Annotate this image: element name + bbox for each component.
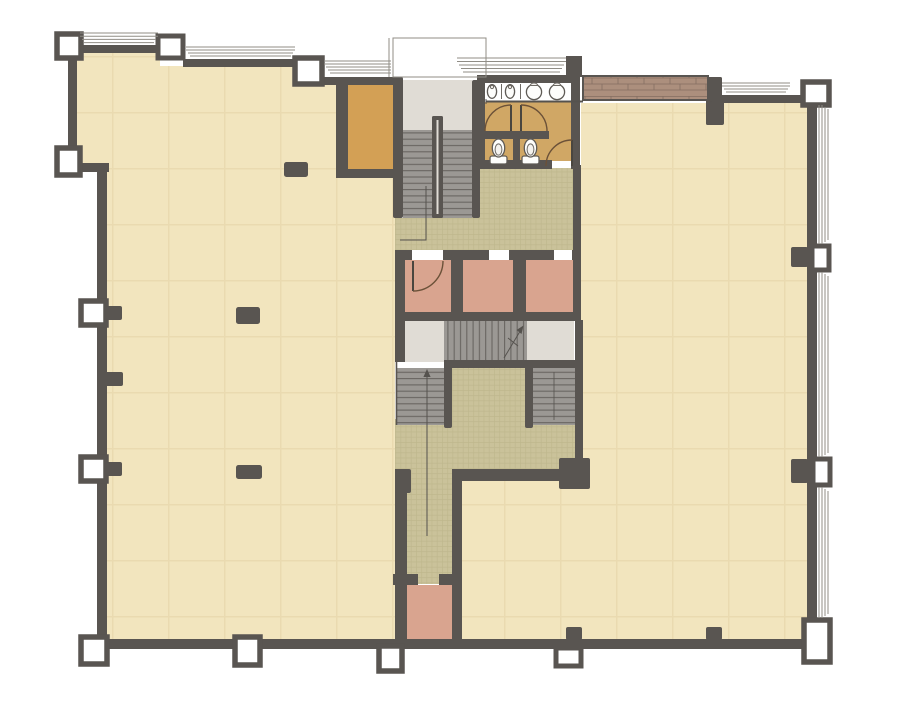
pier-interior-1 — [284, 162, 308, 177]
restroom-window-step-stub — [566, 56, 582, 77]
window-bay-2 — [186, 47, 295, 56]
scissor-upper-run-treads — [444, 321, 527, 362]
column-top-left — [57, 34, 81, 58]
elevator-top-wall-4 — [572, 250, 581, 260]
column-top-2 — [158, 36, 183, 58]
scissor-west-run-treads — [397, 368, 444, 425]
window-bay-top-right — [722, 83, 790, 92]
elevator-top-wall-3 — [509, 250, 554, 260]
pier-bottom-2 — [706, 627, 722, 640]
core-lobby-floor — [395, 419, 575, 470]
pier-right-hall-top — [710, 101, 724, 125]
floor-plan-drawing — [0, 0, 900, 712]
column-bottom-left — [81, 637, 107, 664]
floor-plan-page — [0, 0, 900, 712]
scissor-east-landing — [527, 321, 574, 362]
scissor-void-east-wall — [525, 360, 533, 428]
top-wall-right — [712, 95, 807, 103]
top-wall-bay1 — [77, 45, 160, 53]
restroom-west-wall — [475, 83, 485, 169]
pier-interior-3 — [236, 465, 262, 479]
stall-divider-wall — [513, 131, 520, 169]
lobby-l-wall-horizontal — [452, 469, 564, 481]
restroom-north-wall — [477, 75, 573, 83]
column-bottom-2 — [235, 637, 260, 665]
scissor-void-west-wall — [444, 360, 452, 428]
column-right-lower — [813, 459, 830, 485]
elevator-top-wall-1 — [395, 250, 412, 260]
pier-interior-2 — [236, 307, 260, 324]
scissor-east-run-treads — [533, 368, 577, 425]
column-bottom-4 — [556, 648, 581, 666]
store-room-west-wall — [336, 77, 348, 177]
column-left-lower — [81, 457, 106, 481]
window-bay-restroom — [457, 58, 566, 72]
scissor-mid-wall — [444, 360, 583, 368]
elevator-shaft-3-floor — [526, 260, 573, 312]
elevator-shaft-1-floor — [405, 260, 451, 312]
right-wall — [807, 101, 817, 649]
north-stair-west-wall — [393, 77, 403, 218]
pier-right-lower — [791, 459, 808, 483]
window-right-upper — [819, 105, 828, 244]
elevator-divider-2 — [513, 260, 526, 320]
south-shaft-top-wall-right — [439, 574, 460, 585]
core-east-wall-mid — [573, 165, 581, 320]
column-top-3 — [295, 58, 322, 84]
column-top-right — [803, 82, 829, 105]
pier-left-small — [105, 372, 123, 386]
bench-surface — [583, 76, 708, 100]
south-shaft-top-wall-left — [393, 574, 418, 585]
window-bay-1 — [80, 33, 158, 43]
elevator-bottom-wall — [395, 312, 581, 321]
south-shaft-room-floor — [403, 585, 452, 641]
store-room-south-wall — [336, 169, 396, 178]
urinal-icon-2 — [505, 85, 514, 99]
window-right-mid — [819, 272, 828, 457]
left-wall-lower — [97, 163, 107, 647]
south-corridor-floor — [405, 470, 452, 584]
pier-left-lower — [106, 462, 122, 476]
column-bottom-right — [804, 620, 830, 662]
top-wall-bay2 — [183, 59, 297, 67]
window-right-lower — [819, 487, 828, 618]
window-bay-3 — [324, 61, 391, 73]
column-right-upper — [812, 246, 829, 270]
top-wall-bay3 — [322, 77, 396, 85]
lobby-l-wall-vertical — [452, 481, 462, 649]
column-left-mid — [81, 301, 106, 325]
pier-left-mid — [106, 306, 122, 320]
urinal-icon-1 — [487, 85, 496, 99]
core-east-wall-scissor — [575, 320, 583, 460]
pier-bottom-1 — [566, 627, 582, 640]
pier-right-upper — [791, 247, 808, 267]
core-corridor-west-sliver — [395, 218, 405, 250]
store-room-floor — [348, 85, 393, 170]
core-west-wall-pier — [395, 469, 411, 493]
column-left-jog — [57, 148, 80, 175]
column-bottom-3 — [379, 646, 402, 671]
core-west-wall-south — [395, 469, 407, 649]
elevator-shaft-2-floor — [463, 260, 513, 312]
elevator-top-wall-2 — [443, 250, 489, 260]
elevator-divider-1 — [451, 260, 463, 320]
scissor-center-void-floor — [452, 368, 525, 424]
